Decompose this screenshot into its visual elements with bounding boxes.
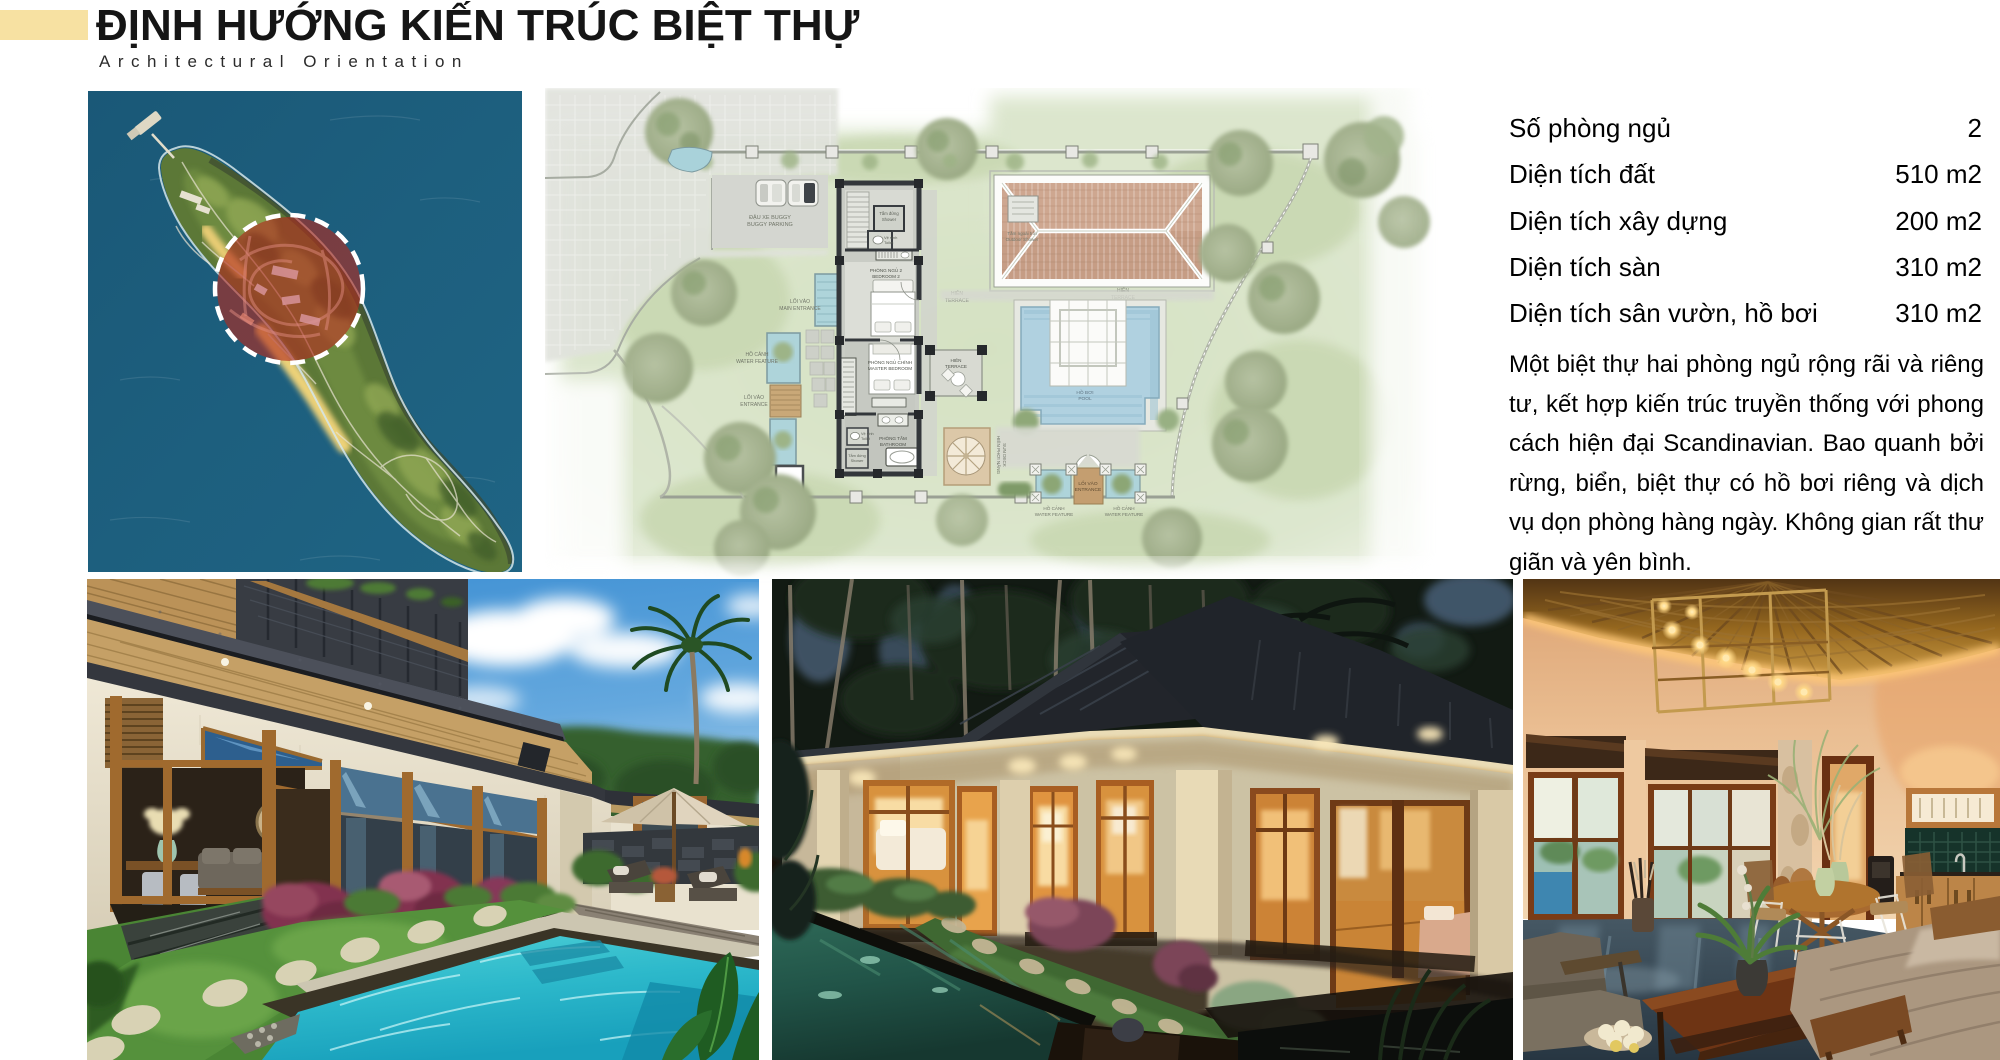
svg-text:POOL: POOL — [1078, 396, 1092, 402]
svg-text:Tắm đứng: Tắm đứng — [879, 211, 899, 216]
svg-text:Shower: Shower — [851, 459, 865, 463]
svg-text:HIÊN PHƠI NẮNG: HIÊN PHƠI NẮNG — [996, 436, 1003, 475]
svg-text:Outdoor Shower: Outdoor Shower — [1006, 237, 1039, 242]
svg-text:Shower: Shower — [882, 217, 897, 222]
svg-text:PHÒNG TẮM: PHÒNG TẮM — [879, 434, 907, 441]
svg-text:LỐI VÀO: LỐI VÀO — [790, 298, 810, 305]
svg-text:Vệ sinh: Vệ sinh — [861, 432, 874, 436]
svg-text:Toilet: Toilet — [884, 240, 894, 245]
svg-text:HỒ BƠI: HỒ BƠI — [1076, 389, 1093, 396]
svg-text:MASTER BEDROOM: MASTER BEDROOM — [868, 366, 912, 371]
svg-text:BEDROOM 2: BEDROOM 2 — [872, 274, 900, 279]
svg-text:HỒ CẢNH: HỒ CẢNH — [1113, 505, 1134, 511]
svg-text:Toilet: Toilet — [861, 437, 871, 441]
svg-text:PHÒNG NGỦ 2: PHÒNG NGỦ 2 — [870, 267, 903, 273]
svg-text:HỒ CẢNH: HỒ CẢNH — [745, 351, 768, 358]
svg-text:ENTRANCE: ENTRANCE — [1075, 487, 1101, 493]
svg-text:WATER FEATURE: WATER FEATURE — [1035, 512, 1073, 517]
svg-text:LỐI VÀO: LỐI VÀO — [744, 394, 764, 401]
svg-text:SUN DECK: SUN DECK — [1002, 443, 1007, 468]
svg-text:BATHROOM: BATHROOM — [880, 442, 906, 447]
svg-text:ENTRANCE: ENTRANCE — [740, 402, 768, 408]
svg-text:PHÒNG NGỦ CHÍNH: PHÒNG NGỦ CHÍNH — [868, 359, 912, 365]
svg-text:HIÊN: HIÊN — [951, 356, 962, 363]
svg-text:Tắm ngoài trời: Tắm ngoài trời — [1007, 230, 1036, 236]
svg-text:WATER FEATURE: WATER FEATURE — [736, 359, 779, 365]
svg-text:HỒ CẢNH: HỒ CẢNH — [1043, 505, 1064, 511]
svg-text:BUGGY PARKING: BUGGY PARKING — [747, 222, 793, 228]
svg-text:ĐẬU XE BUGGY: ĐẬU XE BUGGY — [749, 214, 791, 221]
svg-text:LỐI VÀO: LỐI VÀO — [1078, 480, 1097, 487]
svg-text:Tắm đứng: Tắm đứng — [848, 453, 866, 458]
svg-text:WATER FEATURE: WATER FEATURE — [1105, 512, 1143, 517]
svg-text:MAIN ENTRANCE: MAIN ENTRANCE — [779, 306, 821, 312]
